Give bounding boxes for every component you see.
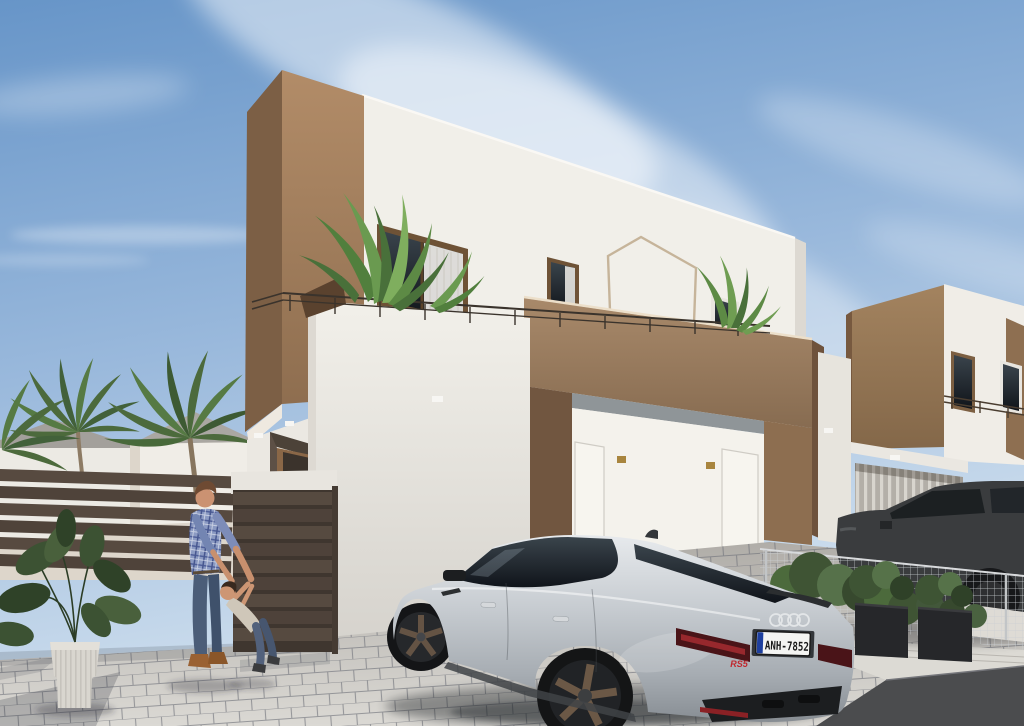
wall-lamp <box>890 455 900 460</box>
door-plaque <box>706 462 715 469</box>
door-handle <box>481 602 496 608</box>
wall-lamp <box>824 428 833 433</box>
neighbor-brown-shade <box>852 285 944 449</box>
exhaust <box>762 700 784 708</box>
garage-pillar-right <box>764 421 812 545</box>
side-mirror <box>443 570 466 581</box>
child-jeans <box>256 626 261 664</box>
planter-box <box>855 604 908 658</box>
architectural-render: ANH-7852 RS5 <box>0 0 1024 726</box>
belt <box>193 571 219 573</box>
wall-lamp <box>254 433 263 438</box>
pot-rim <box>50 642 100 650</box>
suv-window <box>990 487 1024 513</box>
planter-box <box>918 608 972 662</box>
suv-headlight <box>840 529 856 530</box>
corner-column-side <box>245 70 282 432</box>
child-shadow <box>228 679 276 690</box>
rs5-badge: RS5 <box>730 659 749 669</box>
wall-lamp <box>432 396 443 402</box>
wall-lamp <box>285 421 294 426</box>
license-plate-text: ANH-7852 <box>765 638 809 654</box>
license-plate: ANH-7852 <box>752 629 815 658</box>
door-plaque <box>617 456 626 463</box>
boot <box>188 654 211 668</box>
right-side-face <box>795 238 806 341</box>
plate-eu-band <box>757 632 764 653</box>
exhaust <box>798 695 820 703</box>
suv-mirror <box>880 521 892 529</box>
door-handle <box>553 616 569 622</box>
jeans-leg <box>193 574 208 656</box>
garage-pillar-left <box>524 386 572 560</box>
gate-post <box>332 486 338 654</box>
